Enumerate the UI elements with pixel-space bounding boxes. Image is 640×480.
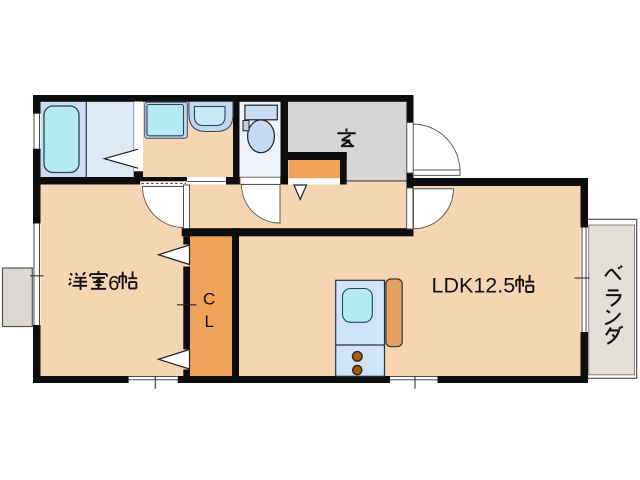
svg-text:C: C [203,290,215,309]
svg-text:LDK12.5: LDK12.5 [432,274,516,298]
svg-text:L: L [205,312,214,331]
svg-text:6: 6 [108,273,119,295]
